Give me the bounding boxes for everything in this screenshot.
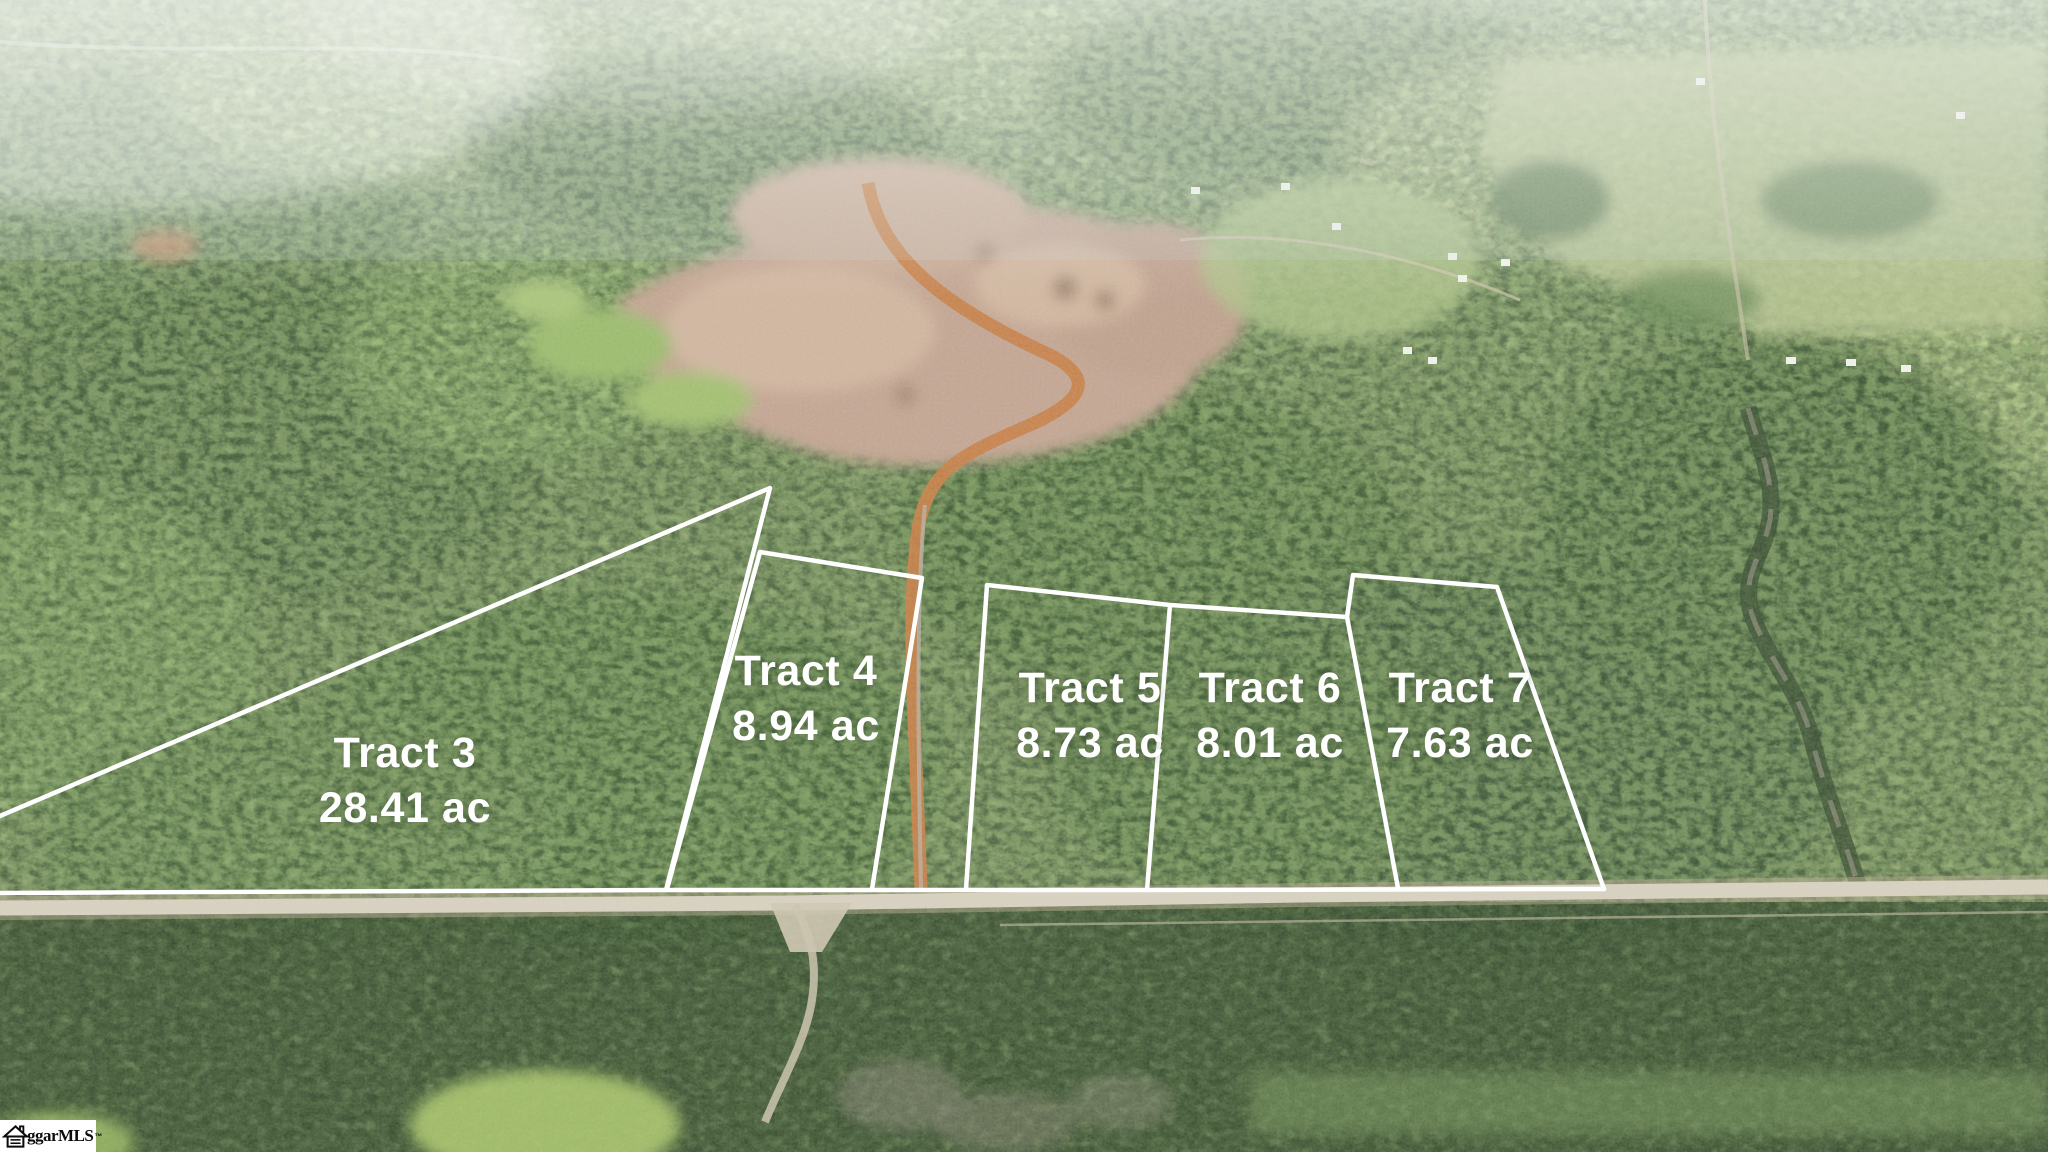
- road-frontage-boundary-line: [0, 889, 1604, 893]
- tract-5-label: Tract 5 8.73 ac: [1016, 661, 1164, 771]
- tract-name: Tract 4: [735, 647, 878, 695]
- tract-acreage: 28.41 ac: [319, 784, 491, 832]
- mls-watermark: ggarMLS ™: [0, 1120, 96, 1152]
- tract-acreage: 7.63 ac: [1386, 719, 1534, 767]
- tract-7-label: Tract 7 7.63 ac: [1386, 661, 1534, 771]
- tract-boundary-overlay: [0, 0, 2048, 1152]
- watermark-text: ggarMLS: [27, 1126, 93, 1146]
- tract-name: Tract 5: [1019, 664, 1162, 712]
- tract-name: Tract 3: [334, 729, 477, 777]
- tract-name: Tract 7: [1389, 664, 1532, 712]
- tract-4-label: Tract 4 8.94 ac: [732, 644, 880, 754]
- tract-name: Tract 6: [1199, 664, 1342, 712]
- tract-acreage: 8.94 ac: [732, 702, 880, 750]
- house-icon: [2, 1123, 29, 1150]
- aerial-photo: Tract 3 28.41 ac Tract 4 8.94 ac Tract 5…: [0, 0, 2048, 1152]
- tract-acreage: 8.01 ac: [1196, 719, 1344, 767]
- watermark-trademark: ™: [94, 1132, 102, 1141]
- tract-3-label: Tract 3 28.41 ac: [319, 726, 491, 836]
- tract-6-label: Tract 6 8.01 ac: [1196, 661, 1344, 771]
- tract-acreage: 8.73 ac: [1016, 719, 1164, 767]
